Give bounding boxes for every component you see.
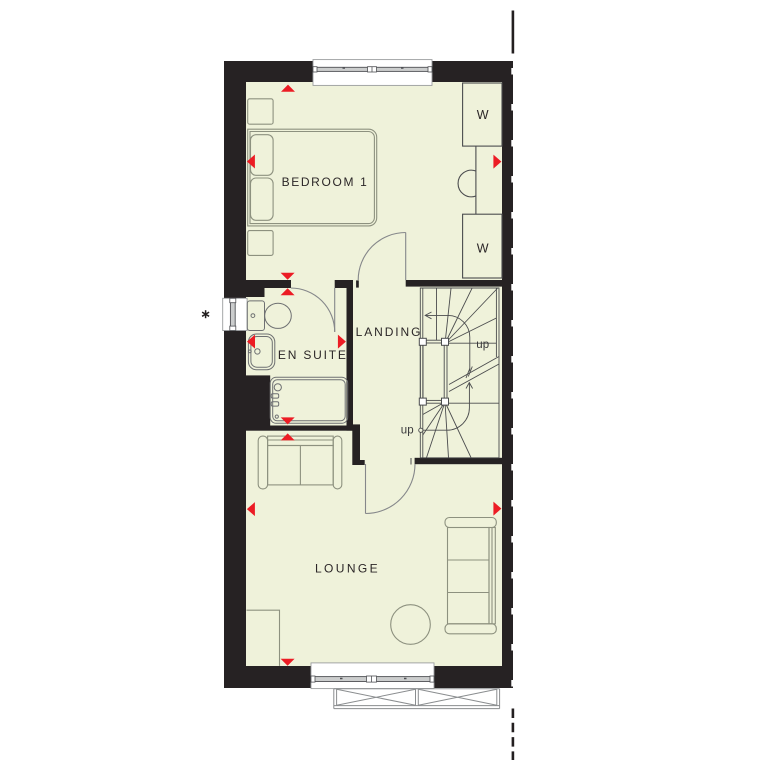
- svg-text:BEDROOM 1: BEDROOM 1: [282, 175, 369, 189]
- svg-text:EN SUITE: EN SUITE: [278, 348, 348, 362]
- svg-text:LANDING: LANDING: [356, 325, 423, 339]
- svg-text:up: up: [401, 425, 414, 437]
- svg-text:W: W: [477, 108, 489, 122]
- svg-text:LOUNGE: LOUNGE: [315, 562, 380, 576]
- svg-text:W: W: [477, 242, 489, 256]
- svg-text:up: up: [476, 339, 489, 351]
